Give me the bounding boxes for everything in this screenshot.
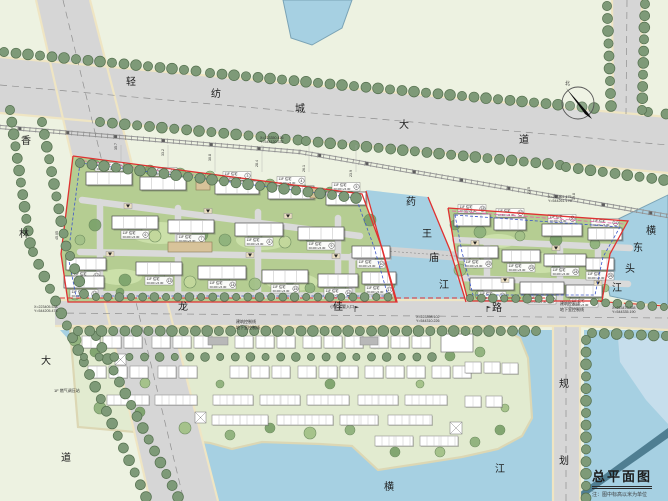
street-tree [11, 48, 21, 58]
street-tree [531, 158, 541, 168]
street-tree [155, 353, 164, 362]
street-tree [661, 109, 668, 119]
rail-post [258, 147, 261, 150]
street-tree [107, 118, 117, 128]
place-name-char: 城 [295, 103, 305, 115]
street-tree [74, 276, 85, 287]
rail-post [162, 139, 165, 142]
street-tree [581, 395, 592, 406]
building-label-elev: ±0.00=+5.30 [309, 246, 326, 250]
street-tree [255, 293, 264, 302]
tree [470, 437, 480, 447]
street-tree [179, 326, 188, 335]
place-name-char: 东 [633, 241, 643, 254]
street-tree [390, 326, 399, 335]
street-tree [167, 481, 177, 491]
parking-shed [208, 337, 228, 345]
street-tree [327, 190, 336, 199]
street-tree [434, 148, 445, 159]
street-tree [581, 359, 592, 370]
street-tree [291, 186, 300, 195]
street-tree [261, 326, 271, 336]
street-tree [637, 93, 648, 104]
tree [140, 378, 150, 388]
street-tree [47, 52, 57, 62]
street-tree [367, 326, 377, 336]
street-tree [624, 330, 633, 339]
street-tree [96, 394, 105, 403]
street-tree [461, 326, 470, 335]
street-tree [307, 326, 318, 337]
street-tree [262, 353, 269, 360]
street-tree [95, 353, 103, 361]
street-tree [107, 418, 118, 429]
tree [416, 380, 424, 388]
tree [345, 425, 355, 435]
street-tree [85, 370, 95, 380]
site-plan-canvas: 11F 住宅±0.00=+5.30111F 住宅±0.00=+5.30211F … [0, 0, 668, 501]
street-tree [622, 170, 633, 181]
street-tree [101, 406, 111, 416]
street-tree [433, 89, 443, 99]
building-number: 17 [388, 288, 392, 292]
north-label: 北 [565, 80, 570, 87]
tree [225, 430, 235, 440]
place-name-char: 香 [21, 135, 31, 147]
tree [325, 379, 335, 389]
building-number: 8 [269, 240, 271, 244]
place-name-char: 龙 [178, 300, 188, 313]
street-tree [422, 147, 432, 157]
street-tree [581, 493, 591, 501]
street-tree [355, 326, 364, 335]
street-tree [523, 294, 532, 303]
tree [249, 278, 261, 290]
street-tree [217, 353, 224, 360]
street-tree [277, 75, 286, 84]
street-tree [397, 86, 407, 96]
street-tree [541, 99, 551, 109]
street-tree [602, 299, 610, 307]
street-tree [483, 154, 492, 163]
street-tree [325, 138, 336, 149]
rail-post [365, 162, 368, 165]
street-tree [484, 326, 495, 337]
street-tree [207, 174, 218, 185]
street-tree [349, 293, 357, 301]
annotation-text: 1F 燃气调压站 [54, 387, 80, 393]
street-tree [135, 165, 146, 176]
building-number: 24 [574, 270, 578, 274]
street-tree [171, 353, 178, 360]
street-tree [603, 26, 614, 37]
street-tree [95, 117, 104, 126]
tree [475, 347, 485, 357]
street-tree [185, 293, 194, 302]
street-tree [313, 137, 323, 147]
rail-post [114, 135, 117, 138]
street-tree [636, 330, 646, 340]
street-tree [186, 353, 194, 361]
street-tree [637, 105, 646, 114]
street-tree [267, 182, 277, 192]
annotation-text: 建筑控制线 [236, 318, 256, 324]
building-label-elev: ±0.00=+5.30 [123, 235, 140, 239]
place-name-char: 江 [439, 279, 449, 291]
street-tree [268, 293, 275, 300]
street-tree [39, 129, 49, 139]
street-tree [253, 72, 263, 82]
street-tree [437, 326, 447, 336]
street-tree [182, 125, 192, 135]
street-tree [167, 63, 178, 74]
tree [179, 422, 191, 434]
street-tree [337, 353, 346, 362]
place-name-char: 大 [41, 354, 51, 367]
street-tree [277, 353, 285, 361]
street-tree [39, 271, 50, 282]
dimension-text: 26.1 [302, 165, 306, 172]
street-tree [301, 76, 312, 87]
street-tree [159, 169, 169, 179]
building-number: 7 [201, 237, 203, 241]
street-tree [191, 66, 201, 76]
place-name-char: 江 [495, 463, 505, 475]
dimension-text: 45.05 [55, 231, 59, 240]
street-tree [95, 56, 106, 67]
street-tree [123, 164, 133, 174]
dimension-text: 21.5 [527, 187, 531, 194]
street-tree [640, 11, 650, 21]
street-tree [99, 161, 110, 172]
street-tree [303, 293, 310, 300]
place-name-char: 头 [625, 263, 635, 275]
street-tree [198, 293, 205, 300]
street-tree [581, 335, 590, 344]
street-tree [466, 294, 473, 301]
street-tree [59, 53, 70, 64]
street-tree [119, 119, 130, 130]
street-tree [5, 105, 14, 114]
drawing-title-block: 总平面图 注：图中标高以米为单位 [592, 466, 652, 498]
street-tree [201, 353, 210, 362]
street-tree [447, 150, 456, 159]
coordinate-label: Y=544261.175 [548, 199, 571, 203]
street-tree [171, 170, 182, 181]
building-number: 3 [247, 174, 249, 178]
street-tree [109, 326, 118, 335]
street-tree [314, 293, 322, 301]
street-tree [19, 201, 30, 212]
tree [495, 425, 505, 435]
street-tree [130, 468, 139, 477]
street-tree [8, 129, 19, 140]
street-tree [351, 193, 362, 204]
street-tree [11, 142, 20, 151]
street-tree [581, 468, 592, 479]
street-tree [581, 445, 590, 454]
annotation-text: 地下室控制线 [560, 306, 584, 312]
tree [216, 380, 224, 388]
place-name-char: 大 [399, 118, 409, 131]
street-tree [214, 326, 223, 335]
street-tree [296, 326, 306, 336]
street-tree [37, 117, 46, 126]
street-tree [135, 480, 145, 490]
place-name-char: 林 [19, 227, 29, 240]
street-tree [659, 175, 668, 186]
street-tree [147, 168, 156, 177]
building-label-elev: ±0.00=+5.30 [359, 264, 376, 268]
street-tree [512, 295, 520, 303]
street-tree [373, 293, 380, 300]
street-tree [7, 117, 17, 127]
building-label-elev: ±0.00=+5.30 [509, 268, 526, 272]
street-tree [638, 70, 647, 79]
street-tree [421, 88, 430, 97]
place-name-char: 王 [422, 229, 432, 240]
street-tree [325, 79, 335, 89]
street-tree [604, 51, 614, 61]
rail-post [18, 127, 21, 130]
street-tree [605, 76, 614, 85]
street-tree [272, 326, 283, 337]
street-tree [244, 293, 252, 301]
street-tree [243, 179, 254, 190]
street-tree [141, 492, 152, 501]
dimension-text: 35.7 [114, 143, 118, 150]
tree [390, 447, 400, 457]
rail-post [507, 187, 510, 190]
street-tree [290, 293, 299, 302]
building-label-elev: ±0.00=+5.30 [273, 289, 290, 293]
street-tree [47, 167, 57, 177]
street-tree [109, 366, 118, 375]
building-number: 9 [331, 244, 333, 248]
street-tree [34, 259, 44, 269]
street-tree [41, 141, 52, 152]
street-tree [205, 68, 214, 77]
rail-post [413, 170, 416, 173]
street-tree [386, 144, 396, 154]
tree [149, 230, 161, 242]
street-tree [85, 326, 95, 336]
coordinate-label: Y=544205.478 [34, 309, 57, 313]
street-tree [360, 293, 369, 302]
street-tree [448, 326, 459, 337]
tree [89, 219, 101, 231]
street-tree [141, 353, 149, 361]
street-tree [384, 293, 392, 301]
street-tree [12, 153, 22, 163]
street-tree [124, 455, 135, 466]
street-tree [162, 293, 169, 300]
street-tree [52, 192, 61, 201]
street-tree [604, 39, 613, 48]
street-tree [45, 284, 54, 293]
vacant-plot [441, 334, 473, 352]
street-tree [508, 326, 518, 336]
building-number: 15 [294, 287, 298, 291]
street-tree [638, 81, 648, 91]
street-tree [307, 353, 314, 360]
street-tree [546, 295, 554, 303]
street-tree [132, 412, 142, 422]
dimension-text: 19.8 [572, 193, 576, 200]
street-tree [505, 95, 515, 105]
street-tree [170, 124, 179, 133]
street-tree [495, 154, 505, 164]
dimension-text: 28.4 [255, 160, 259, 167]
parking-shed [360, 337, 378, 345]
street-tree [367, 353, 375, 361]
street-tree [320, 326, 329, 335]
amenity-building [168, 242, 212, 252]
street-tree [639, 46, 649, 56]
street-tree [603, 14, 613, 24]
place-name-char: 道 [519, 133, 529, 146]
building-label-elev: ±0.00=+5.30 [147, 281, 164, 285]
tree [474, 226, 486, 238]
place-name-char: 横 [384, 480, 394, 493]
street-tree [111, 163, 120, 172]
street-tree [45, 155, 54, 164]
street-tree [639, 22, 650, 33]
coordinate-label: Y=544310.226 [416, 319, 439, 323]
street-tree [581, 347, 591, 357]
street-tree [131, 60, 142, 71]
street-tree [481, 93, 492, 104]
street-tree [126, 353, 133, 360]
street-tree [648, 302, 657, 311]
building-number: 5 [356, 185, 358, 189]
street-tree [179, 65, 188, 74]
building-label-elev: ±0.00=+5.30 [553, 272, 570, 276]
street-tree [131, 326, 142, 337]
street-tree [219, 177, 228, 186]
place-name-char: 江 [612, 282, 622, 294]
street-tree [585, 165, 596, 176]
street-tree [301, 136, 310, 145]
street-tree [0, 47, 9, 56]
street-tree [156, 122, 167, 133]
place-name-char: 庙 [429, 251, 439, 264]
street-tree [409, 86, 420, 97]
street-tree [28, 247, 37, 256]
street-tree [16, 178, 25, 187]
street-tree [638, 57, 649, 68]
street-tree [62, 321, 71, 330]
street-tree [339, 191, 349, 201]
building-number: 6 [145, 233, 147, 237]
street-tree [265, 73, 276, 84]
dimension-text: 30.8 [208, 154, 212, 161]
street-tree [573, 164, 583, 174]
street-tree [361, 141, 372, 152]
street-tree [581, 408, 590, 417]
street-tree [150, 446, 160, 456]
street-tree [410, 147, 419, 156]
rail-post [602, 203, 605, 206]
street-tree [18, 190, 28, 200]
street-tree [127, 293, 134, 300]
street-tree [255, 181, 264, 190]
rail-post [318, 154, 321, 157]
street-tree [54, 204, 64, 214]
street-tree [581, 457, 591, 467]
street-tree [648, 330, 659, 341]
street-tree [220, 293, 229, 302]
street-tree [35, 51, 44, 60]
street-tree [144, 435, 153, 444]
street-tree [506, 155, 517, 166]
street-tree [92, 293, 99, 300]
street-tree [647, 173, 657, 183]
building-number: 25 [609, 274, 613, 278]
street-tree [426, 326, 435, 335]
building-number: 22 [487, 262, 491, 266]
street-tree [65, 251, 74, 260]
street-tree [145, 122, 155, 132]
street-tree [599, 329, 609, 339]
street-tree [246, 353, 255, 362]
street-tree [144, 326, 153, 335]
street-tree [233, 293, 240, 300]
street-tree [114, 377, 124, 387]
rail-post [66, 131, 69, 134]
street-tree [231, 353, 239, 361]
street-tree [291, 353, 300, 362]
building-number: 23 [530, 266, 534, 270]
street-tree [606, 101, 617, 112]
street-tree [71, 55, 80, 64]
drawing-title: 总平面图 [592, 466, 652, 489]
street-tree [155, 62, 165, 72]
coordinate-label: Y=544120.332 [260, 140, 283, 144]
street-tree [535, 295, 542, 302]
street-tree [87, 160, 97, 170]
street-tree [361, 82, 371, 92]
street-tree [373, 83, 384, 94]
street-tree [331, 326, 341, 336]
street-tree [150, 293, 159, 302]
building-number: 10 [380, 262, 384, 266]
street-tree [517, 96, 528, 107]
street-tree [174, 293, 182, 301]
street-tree [59, 229, 68, 238]
street-tree [325, 293, 334, 302]
street-tree [70, 264, 80, 274]
street-tree [90, 381, 101, 392]
street-tree [561, 162, 570, 171]
street-tree [226, 326, 236, 336]
street-tree [289, 76, 299, 86]
street-tree [606, 89, 616, 99]
street-tree [79, 289, 88, 298]
street-tree [244, 131, 253, 140]
street-tree [529, 98, 538, 107]
street-tree [349, 82, 358, 91]
street-tree [202, 326, 213, 337]
tree [184, 276, 196, 288]
tree [445, 351, 455, 361]
street-tree [155, 457, 166, 468]
street-tree [428, 353, 437, 362]
street-tree [190, 326, 200, 336]
street-tree [194, 126, 205, 137]
street-tree [209, 293, 217, 301]
street-tree [501, 295, 508, 302]
